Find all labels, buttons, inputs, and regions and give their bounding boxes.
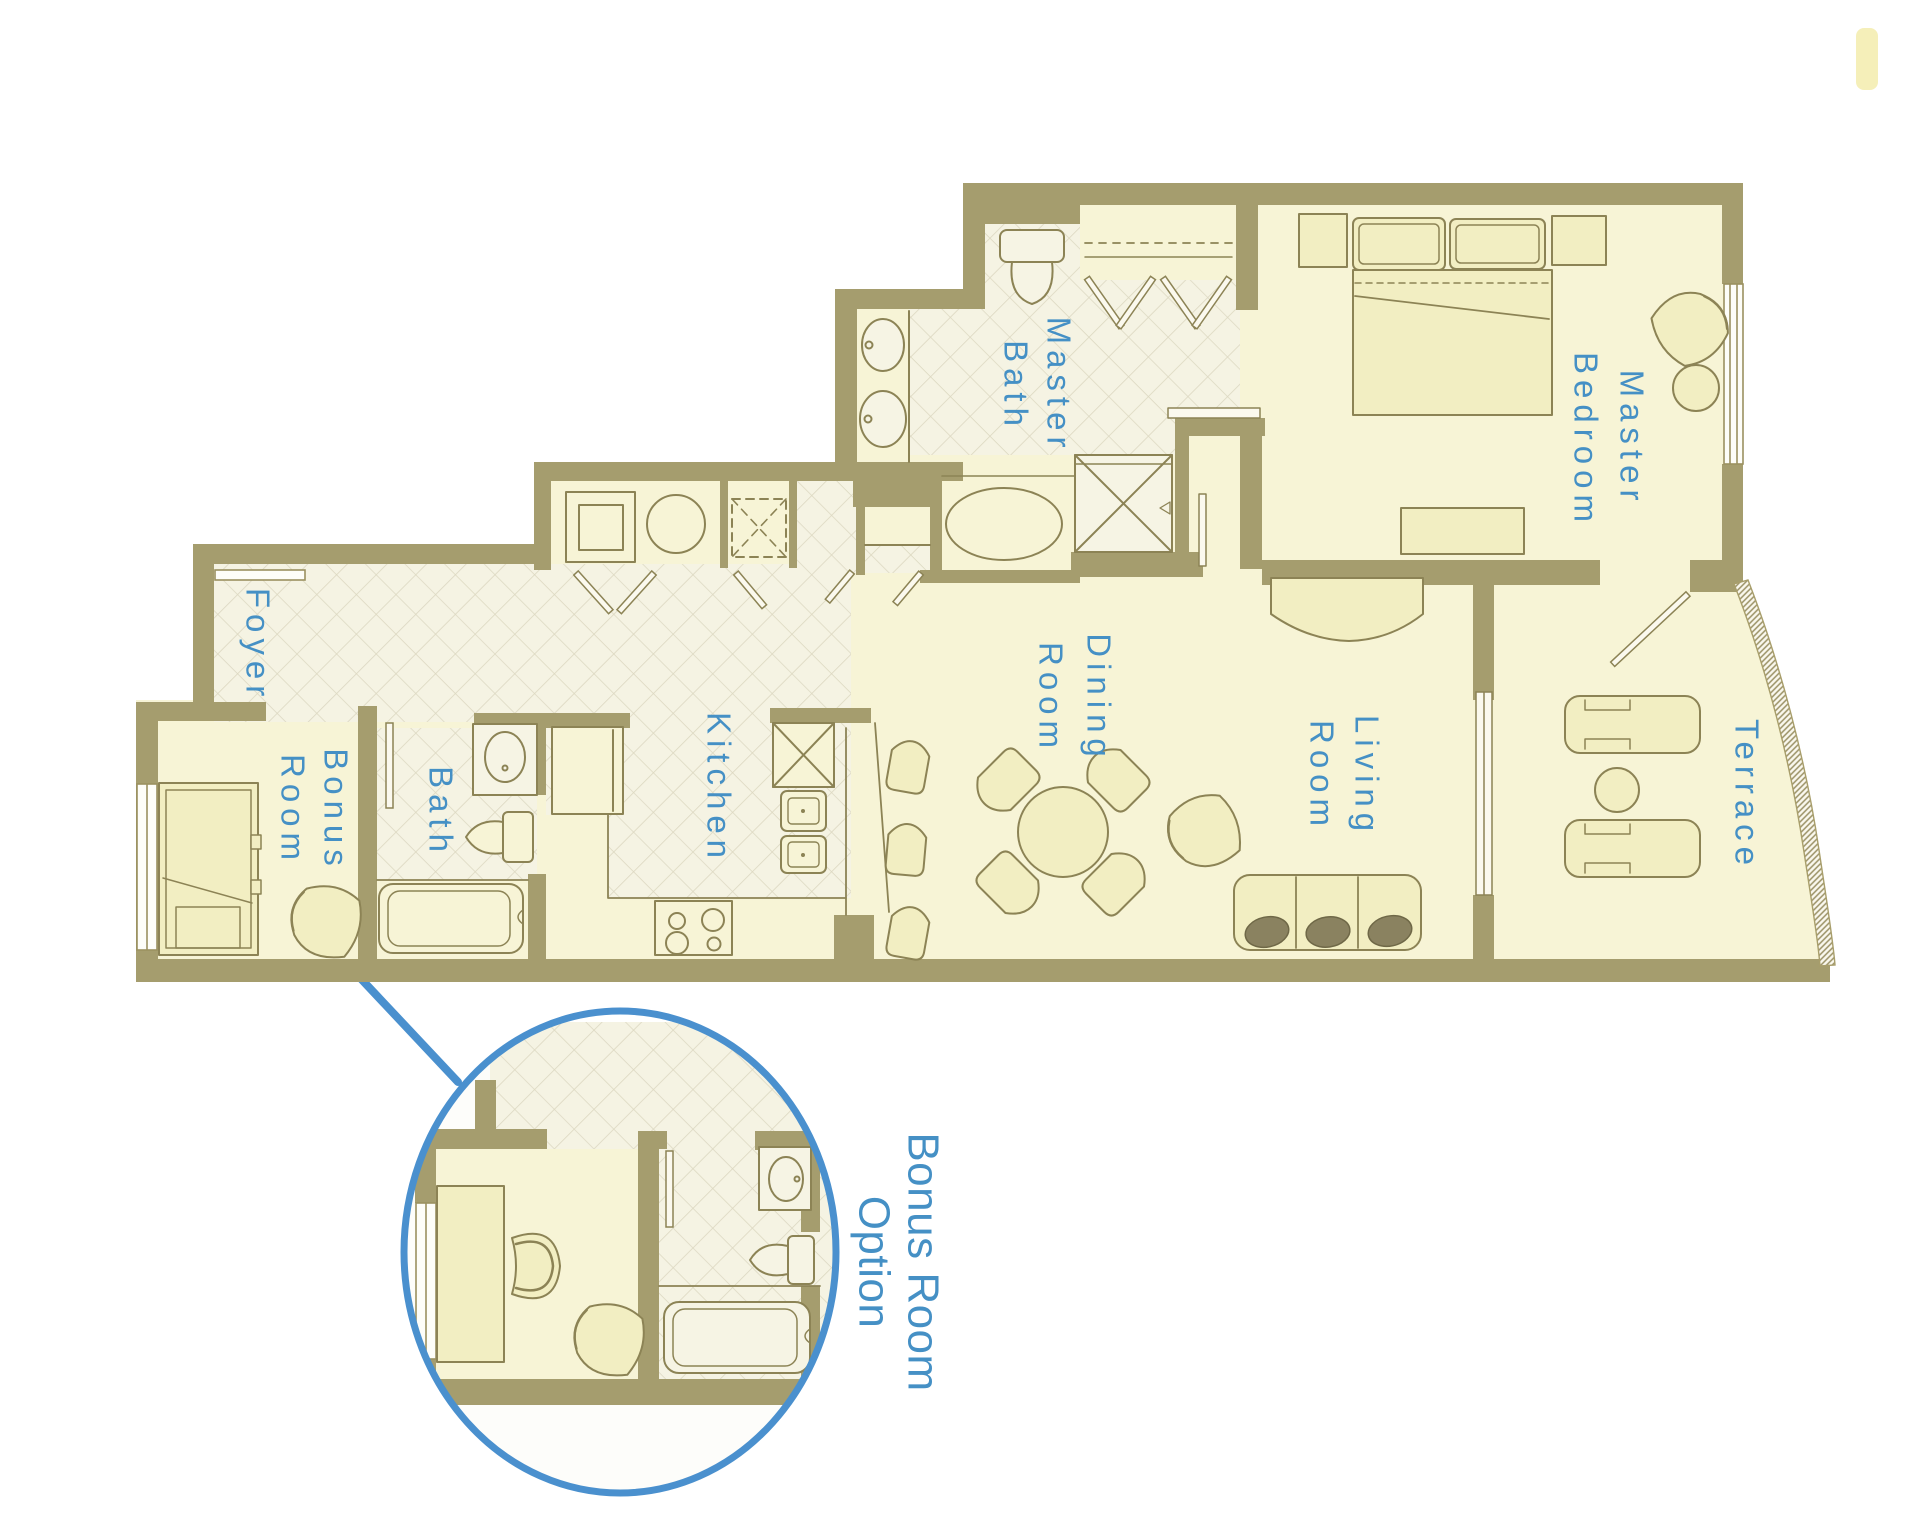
svg-text:Option: Option bbox=[850, 1196, 899, 1329]
svg-text:Terrace: Terrace bbox=[1729, 719, 1766, 871]
svg-text:Master: Master bbox=[1614, 370, 1651, 507]
svg-text:Living: Living bbox=[1349, 715, 1386, 837]
svg-text:Kitchen: Kitchen bbox=[701, 712, 738, 864]
svg-text:Bonus: Bonus bbox=[318, 748, 355, 872]
svg-text:Room: Room bbox=[1033, 642, 1070, 754]
svg-text:Foyer: Foyer bbox=[240, 588, 277, 702]
svg-text:Dining: Dining bbox=[1081, 633, 1118, 763]
svg-text:Master: Master bbox=[1041, 317, 1078, 454]
svg-text:Room: Room bbox=[1304, 720, 1341, 832]
svg-text:Room: Room bbox=[275, 754, 312, 866]
svg-text:Bedroom: Bedroom bbox=[1568, 352, 1605, 528]
svg-text:Bath: Bath bbox=[423, 766, 460, 858]
svg-text:Bath: Bath bbox=[998, 340, 1035, 432]
svg-text:Bonus Room: Bonus Room bbox=[899, 1132, 948, 1391]
